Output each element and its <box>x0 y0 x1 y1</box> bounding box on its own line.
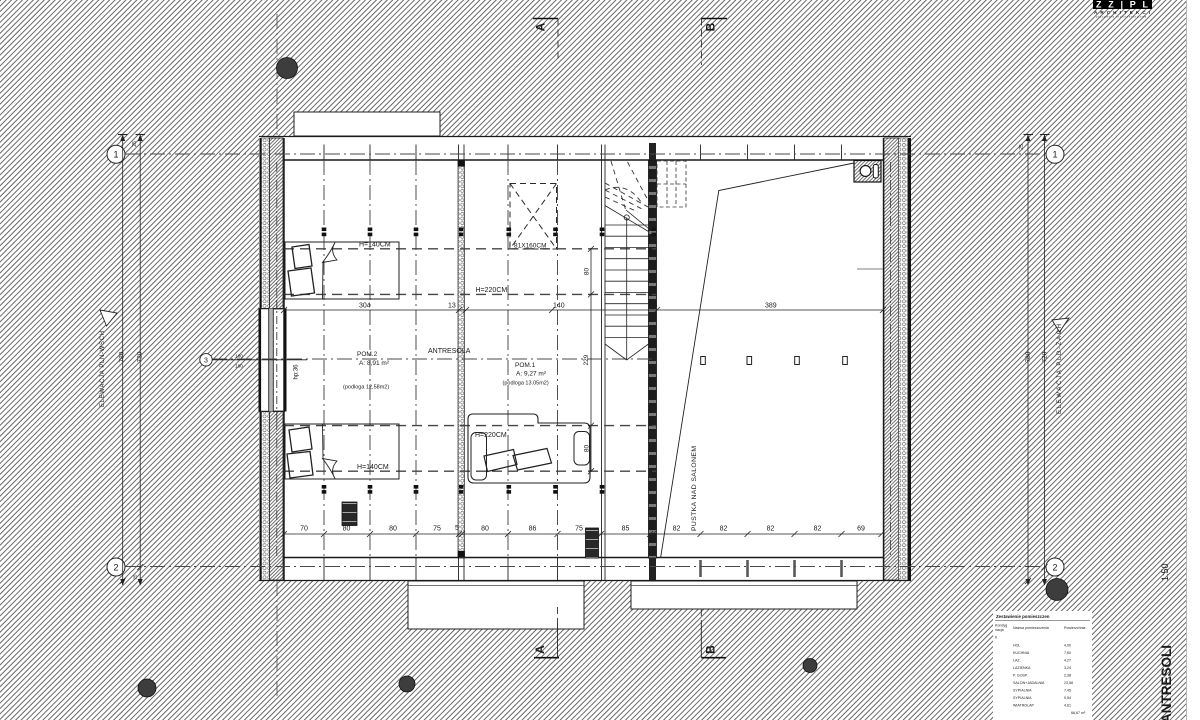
svg-text:H=220CM: H=220CM <box>476 287 508 294</box>
svg-text:H=140CM: H=140CM <box>357 464 389 471</box>
svg-text:P. GOSP.: P. GOSP. <box>1013 674 1028 678</box>
svg-text:H=140CM: H=140CM <box>359 242 391 249</box>
svg-text:720: 720 <box>1042 351 1049 362</box>
svg-text:720: 720 <box>137 351 144 362</box>
svg-text:1: 1 <box>113 150 118 160</box>
svg-text:82: 82 <box>720 526 728 533</box>
svg-text:4,61: 4,61 <box>1064 704 1071 708</box>
svg-text:3,24: 3,24 <box>1064 666 1071 670</box>
svg-text:7,60: 7,60 <box>1064 651 1071 655</box>
svg-text:2,38: 2,38 <box>1064 674 1071 678</box>
svg-text:Kondyg: Kondyg <box>995 624 1007 628</box>
svg-text:POM.1: POM.1 <box>515 362 536 369</box>
svg-text:69: 69 <box>857 526 865 533</box>
svg-text:7,45: 7,45 <box>1064 689 1071 693</box>
svg-text:3: 3 <box>204 358 208 365</box>
svg-text:LAZIENKA: LAZIENKA <box>1013 666 1031 670</box>
svg-text:229: 229 <box>583 354 590 365</box>
svg-text:WIATROLAP: WIATROLAP <box>1013 704 1035 708</box>
svg-text:Powierzchnia: Powierzchnia <box>1064 626 1085 630</box>
svg-text:5: 5 <box>650 525 654 532</box>
svg-text:(podloga 12,58m2): (podloga 12,58m2) <box>343 385 389 391</box>
svg-text:1:50: 1:50 <box>1160 563 1170 581</box>
svg-text:82: 82 <box>767 526 775 533</box>
svg-text:KUCHNIA: KUCHNIA <box>1013 651 1030 655</box>
svg-text:hp:36: hp:36 <box>294 364 300 380</box>
svg-text:↕: ↕ <box>508 243 511 250</box>
svg-text:pracownia architektoniczna: pracownia architektoniczna <box>1096 15 1146 19</box>
svg-text:80: 80 <box>389 526 397 533</box>
svg-text:Zestawienie pomieszczen: Zestawienie pomieszczen <box>996 614 1050 619</box>
svg-text:23,58: 23,58 <box>1064 681 1073 685</box>
svg-text:85: 85 <box>622 526 630 533</box>
svg-text:4,27: 4,27 <box>1064 659 1071 663</box>
svg-text:A: 8,91 m²: A: 8,91 m² <box>359 360 390 367</box>
svg-text:nacja: nacja <box>995 628 1004 632</box>
svg-text:80: 80 <box>584 268 591 276</box>
svg-text:ELEWACJA PLN-WSCH: ELEWACJA PLN-WSCH <box>100 331 106 407</box>
svg-text:SYPIALNIA: SYPIALNIA <box>1013 689 1032 693</box>
svg-text:140: 140 <box>553 303 565 310</box>
svg-text:75: 75 <box>433 526 441 533</box>
svg-text:(podloga 13.05m2): (podloga 13.05m2) <box>503 381 549 387</box>
svg-text:1: 1 <box>1052 150 1057 160</box>
svg-text:B: B <box>704 645 718 654</box>
svg-text:86: 86 <box>529 526 537 533</box>
svg-text:ANTRESOLA: ANTRESOLA <box>428 348 471 355</box>
svg-text:80: 80 <box>343 526 351 533</box>
svg-text:81X160CM: 81X160CM <box>514 243 547 250</box>
svg-text:66,67 m²: 66,67 m² <box>1071 711 1086 715</box>
svg-text:70: 70 <box>300 526 308 533</box>
svg-text:304: 304 <box>359 303 371 310</box>
svg-text:780: 780 <box>119 351 126 362</box>
svg-text:A: A <box>533 645 547 654</box>
svg-text:82: 82 <box>673 526 681 533</box>
svg-text:4,00: 4,00 <box>1064 644 1071 648</box>
svg-text:82: 82 <box>814 526 822 533</box>
svg-text:SYPIALNIA: SYPIALNIA <box>1013 696 1032 700</box>
svg-text:25: 25 <box>132 141 138 147</box>
svg-text:POM.2: POM.2 <box>357 351 378 358</box>
svg-text:Nazwa pomieszczenia: Nazwa pomieszczenia <box>1013 626 1049 630</box>
svg-text:A: 9,27 m²: A: 9,27 m² <box>516 371 547 378</box>
svg-text:LAZ.: LAZ. <box>1013 659 1021 663</box>
svg-text:2: 2 <box>113 562 118 572</box>
svg-text:13: 13 <box>448 303 456 310</box>
svg-text:PUSTKA NAD SALONEM: PUSTKA NAD SALONEM <box>691 446 698 531</box>
svg-text:A: A <box>534 22 548 31</box>
svg-text:389: 389 <box>765 303 777 310</box>
svg-text:9,54: 9,54 <box>1064 696 1071 700</box>
svg-text:80: 80 <box>481 526 489 533</box>
svg-text:80: 80 <box>584 445 591 453</box>
svg-text:180: 180 <box>235 354 243 359</box>
svg-text:ELEWACJA PLD-ZACH: ELEWACJA PLD-ZACH <box>1057 324 1063 414</box>
svg-text:B: B <box>704 22 718 31</box>
svg-text:ANTRESOLI: ANTRESOLI <box>1159 645 1174 720</box>
svg-text:75: 75 <box>575 526 583 533</box>
svg-text:780: 780 <box>1025 351 1032 362</box>
svg-text:2: 2 <box>1052 562 1057 572</box>
svg-text:25: 25 <box>1019 144 1025 150</box>
svg-text:5: 5 <box>455 525 459 532</box>
svg-text:H=220CM: H=220CM <box>475 432 507 439</box>
svg-text:II: II <box>995 636 997 640</box>
svg-text:25: 25 <box>133 574 138 580</box>
svg-text:190: 190 <box>235 364 243 369</box>
svg-text:HOL: HOL <box>1013 644 1020 648</box>
svg-text:SALON+JADALNIA: SALON+JADALNIA <box>1013 681 1045 685</box>
